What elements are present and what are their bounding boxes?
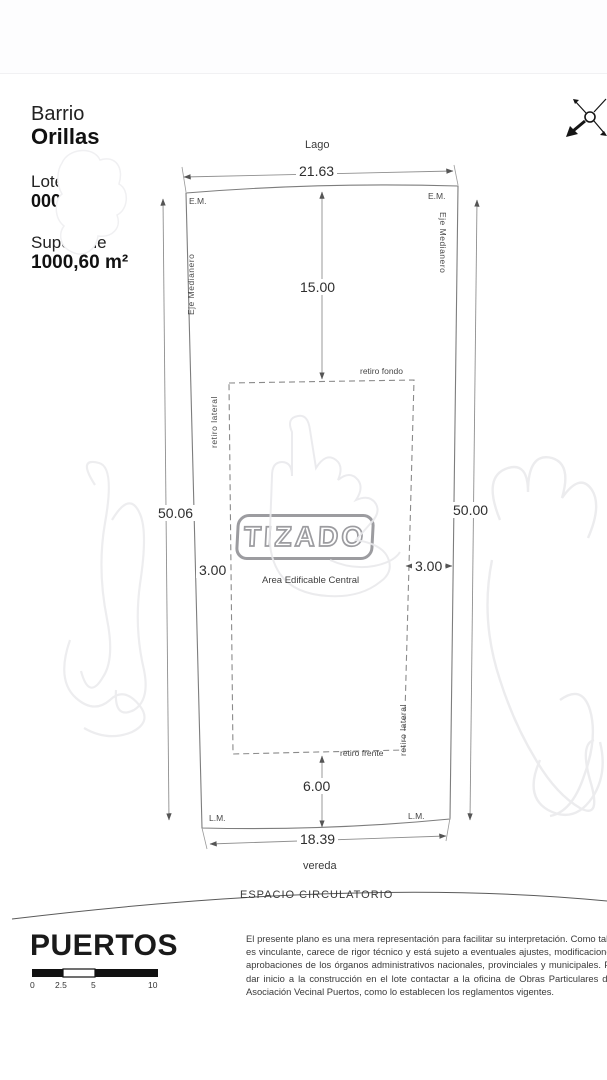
em-right-label: E.M. — [428, 191, 445, 201]
tizado-watermark: TIZADO — [235, 514, 375, 560]
lot-plan-page: Barrio Orillas Lote 0000 Superficie 1000… — [0, 0, 607, 1080]
retiro-frente-label: retiro frente — [340, 748, 383, 758]
street-bottom-label: vereda — [303, 860, 337, 872]
retiro-lateral-right-label: retiro lateral — [398, 694, 408, 756]
lm-left-label: L.M. — [209, 813, 226, 823]
dim-lateral-left: 3.00 — [196, 562, 229, 578]
dim-side-right: 50.00 — [450, 502, 491, 518]
redaction-blob — [56, 151, 126, 254]
em-left-label: E.M. — [189, 196, 206, 206]
dim-front-top: 21.63 — [296, 163, 337, 179]
erased-scribble-left — [64, 462, 145, 736]
lm-right-label: L.M. — [408, 811, 425, 821]
ext-line — [202, 828, 207, 849]
street-top-label: Lago — [305, 139, 329, 151]
building-envelope-dashed — [229, 380, 414, 754]
scale-tick-10: 10 — [148, 980, 157, 990]
area-edificable-label: Area Edificable Central — [262, 575, 359, 586]
ext-line — [454, 165, 458, 185]
dim-front-setback: 6.00 — [300, 778, 333, 794]
dim-lateral-right: 3.00 — [412, 558, 445, 574]
scale-tick-5: 5 — [91, 980, 96, 990]
disclaimer-text: El presente plano es una mera representa… — [246, 932, 607, 998]
eje-medianero-left-label: Eje Medianero — [186, 215, 196, 315]
retiro-lateral-left-label: retiro lateral — [209, 386, 219, 448]
compass-icon — [566, 99, 607, 137]
scale-tick-0: 0 — [30, 980, 35, 990]
retiro-fondo-label: retiro fondo — [360, 366, 403, 376]
eje-medianero-right-label: Eje Medianero — [438, 212, 448, 312]
ext-line — [182, 167, 186, 192]
tizado-watermark-text: TIZADO — [243, 521, 367, 553]
erased-scribble-right — [488, 457, 603, 816]
espacio-circulatorio-label: ESPACIO CIRCULATORIO — [240, 889, 393, 901]
dim-depth: 15.00 — [297, 279, 338, 295]
ext-line — [446, 818, 450, 841]
dim-front-bottom: 18.39 — [297, 831, 338, 847]
scale-tick-2-5: 2.5 — [55, 980, 67, 990]
puertos-logo: PUERTOS — [30, 929, 178, 963]
dim-side-left: 50.06 — [155, 505, 196, 521]
